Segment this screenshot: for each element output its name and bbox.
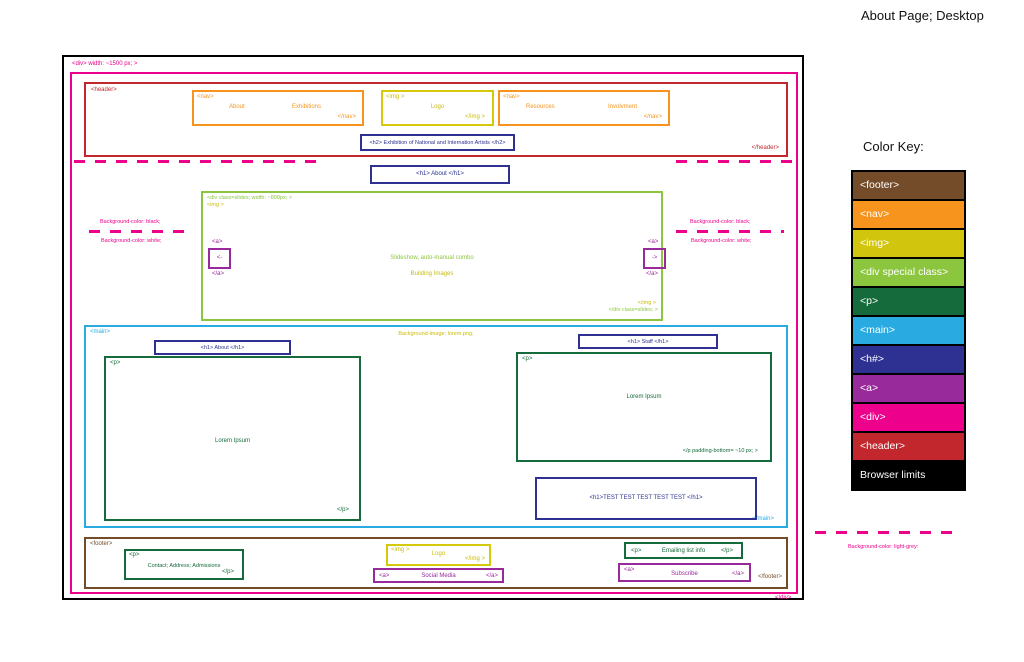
a-close-tag: </a> — [732, 571, 744, 578]
p-staff-box: <p> Lorem Ipsum </p padding-bottom= ~10 … — [516, 352, 772, 462]
img-close-tag: </img > — [465, 556, 485, 563]
main-h1-about-text: <h1> About </h1> — [201, 345, 245, 351]
bg-black-note-left: Background-color: black; — [100, 219, 161, 225]
building-images-note: Building Images — [203, 271, 661, 278]
logo-label: Logo — [383, 104, 492, 111]
p-about-box: <p> Lorem Ipsum </p> — [104, 356, 361, 521]
img-close-tag: </img > — [465, 114, 485, 121]
key-header: <header> — [851, 431, 966, 462]
slideshow-div-box: <div class=slides; width: ~800px; > <img… — [201, 191, 663, 321]
key-footer: <footer> — [851, 170, 966, 201]
footer-subscribe-a-box: <a> Subscribe </a> — [618, 563, 751, 582]
footer-subscribe-label: Subscribe — [620, 571, 749, 578]
nav-link-resources: Resources — [526, 104, 555, 111]
p-close-tag: </p padding-bottom= ~10 px; > — [683, 448, 758, 454]
nav-close-tag: </nav> — [338, 114, 356, 121]
nav-link-exhibitions: Exhibitions — [292, 104, 321, 111]
footer-social-label: Social Media — [375, 573, 502, 580]
p-open-tag: <p> — [522, 356, 532, 363]
nav-link-about: About — [229, 104, 245, 111]
a-open-tag: <a> — [212, 239, 222, 246]
main-h1-staff-text: <h1> Staff </h1> — [628, 339, 669, 345]
key-nav: <nav> — [851, 199, 966, 230]
key-a: <a> — [851, 373, 966, 404]
header-close-tag: </header> — [752, 145, 779, 152]
p-about-body: Lorem Ipsum — [106, 438, 359, 445]
div-open-tag: <div> width: ~1500 px; > — [72, 61, 137, 68]
footer-close-tag: </footer> — [758, 574, 782, 581]
key-p: <p> — [851, 286, 966, 317]
main-h1-test-box: <h1>TEST TEST TEST TEST TEST </h1> — [535, 477, 757, 520]
header-open-tag: <header> — [91, 87, 117, 94]
main-box: <main> </main> Background-image: lorem.p… — [84, 325, 788, 528]
p-close-tag: </p> — [222, 569, 234, 576]
nav-close-tag: </nav> — [644, 114, 662, 121]
key-img: <img> — [851, 228, 966, 259]
main-h1-about-box: <h1> About </h1> — [154, 340, 291, 355]
h2-box: <h2> Exhibition of National and Internat… — [360, 134, 515, 151]
footer-open-tag: <footer> — [90, 541, 112, 548]
slides-div-open-tag: <div class=slides; width: ~800px; > — [207, 195, 292, 201]
browser-edge-dash-left — [74, 160, 319, 163]
div-close-tag: </div> — [775, 595, 791, 602]
key-browser-limits: Browser limits — [851, 460, 966, 491]
a-close-tag: </a> — [486, 573, 498, 580]
p-close-tag: </p> — [721, 548, 733, 555]
img-close-tag: </img > — [638, 300, 656, 306]
img-open-tag: <img > — [207, 202, 224, 208]
header-box: <header> </header> <nav> About Exhibitio… — [84, 82, 788, 157]
nav-open-tag: <nav> — [197, 94, 214, 101]
key-main: <main> — [851, 315, 966, 346]
p-close-tag: </p> — [337, 507, 349, 514]
nav-open-tag: <nav> — [503, 94, 520, 101]
page-div-box: <header> </header> <nav> About Exhibitio… — [70, 72, 798, 594]
footer-contact-p-box: <p> Contact; Address; Admissions </p> — [124, 549, 244, 580]
h2-text: <h2> Exhibition of National and Internat… — [369, 140, 505, 146]
p-open-tag: <p> — [129, 552, 139, 559]
a-open-tag: <a> — [648, 239, 658, 246]
color-key-list: <footer> <nav> <img> <div special class>… — [851, 170, 966, 491]
page-title: About Page; Desktop — [861, 8, 984, 23]
img-open-tag: <img > — [386, 94, 404, 101]
nav-left-box: <nav> About Exhibitions </nav> — [192, 90, 364, 126]
bg-dash-left — [89, 230, 194, 233]
key-div-special-class: <div special class> — [851, 257, 966, 288]
slideshow-note: Slideshow, auto-manual combo — [203, 255, 661, 262]
slides-div-close-tag: </div class=slides; > — [609, 307, 658, 313]
hero-h1-box: <h1> About </h1> — [370, 165, 510, 184]
color-key-title: Color Key: — [863, 139, 924, 154]
nav-right-box: <nav> Resources Involvment </nav> — [498, 90, 670, 126]
browser-limits-box: <div> width: ~1500 px; > </div> <header>… — [62, 55, 804, 600]
key-h: <h#> — [851, 344, 966, 375]
footer-social-a-box: <a> Social Media </a> — [373, 568, 504, 583]
p-open-tag: <p> — [110, 360, 120, 367]
footer-logo-img-box: <img > Logo </img > — [386, 544, 491, 566]
key-div: <div> — [851, 402, 966, 433]
wireframe-canvas: About Page; Desktop <div> width: ~1500 p… — [0, 0, 1024, 662]
bg-white-note-left: Background-color: white; — [101, 238, 162, 244]
header-logo-img-box: <img > Logo </img > — [381, 90, 494, 126]
hero-h1-text: <h1> About </h1> — [416, 171, 464, 178]
nav-link-involvment: Involvment — [608, 104, 637, 111]
browser-edge-dash-right — [676, 160, 799, 163]
main-h1-staff-box: <h1> Staff </h1> — [578, 334, 718, 349]
footer-email-p-box: <p> Emailing list info </p> — [624, 542, 743, 559]
bg-black-note-right: Background-color: black; — [690, 219, 751, 225]
bg-light-grey-dash — [815, 531, 957, 534]
bg-white-note-right: Background-color: white; — [691, 238, 752, 244]
bg-light-grey-note: Background-color: light-grey: — [848, 544, 918, 550]
bg-dash-right — [676, 230, 784, 233]
footer-box: <footer> </footer> <p> Contact; Address;… — [84, 537, 788, 589]
main-h1-test-text: <h1>TEST TEST TEST TEST TEST </h1> — [589, 495, 702, 502]
p-staff-body: Lorem Ipsum — [518, 394, 770, 401]
